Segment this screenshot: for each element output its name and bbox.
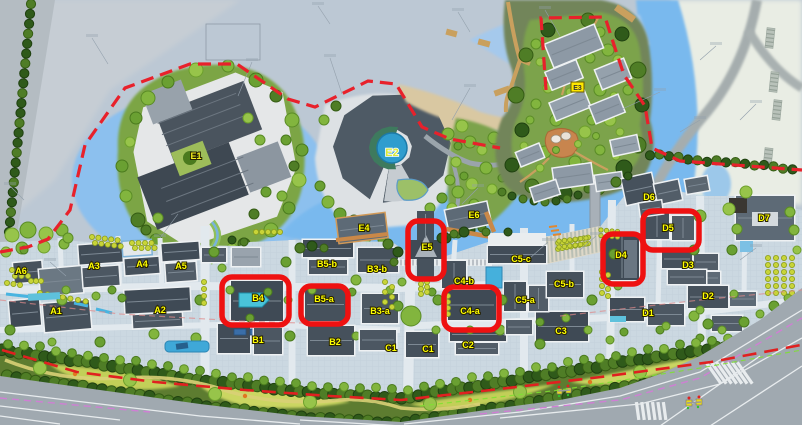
svg-text:E3: E3	[573, 85, 582, 92]
svg-text:B5-b: B5-b	[317, 259, 338, 269]
svg-text:B3-b: B3-b	[367, 264, 388, 274]
svg-text:E2: E2	[385, 147, 398, 159]
svg-text:D1: D1	[642, 308, 654, 318]
svg-text:D3: D3	[682, 260, 694, 270]
svg-text:D5: D5	[662, 223, 674, 233]
svg-text:B5-a: B5-a	[314, 294, 335, 304]
svg-text:A3: A3	[88, 261, 100, 271]
svg-text:E6: E6	[468, 210, 479, 220]
svg-text:E1: E1	[190, 151, 201, 161]
svg-text:C2: C2	[462, 340, 474, 350]
svg-text:A1: A1	[50, 306, 62, 316]
svg-text:B3-a: B3-a	[370, 306, 391, 316]
svg-text:C4-a: C4-a	[460, 306, 481, 316]
svg-text:C5-b: C5-b	[554, 279, 575, 289]
svg-text:C5-a: C5-a	[515, 295, 536, 305]
svg-text:A6: A6	[15, 266, 27, 276]
svg-text:E5: E5	[421, 242, 432, 252]
svg-text:B1: B1	[252, 335, 264, 345]
svg-text:A5: A5	[175, 261, 187, 271]
svg-text:A4: A4	[136, 259, 148, 269]
svg-text:C1: C1	[385, 343, 397, 353]
svg-text:D6: D6	[643, 192, 655, 202]
svg-text:E4: E4	[358, 223, 369, 233]
svg-text:C5-c: C5-c	[511, 254, 531, 264]
svg-text:B2: B2	[329, 337, 341, 347]
svg-text:C1: C1	[422, 344, 434, 354]
svg-text:C4-b: C4-b	[454, 276, 475, 286]
svg-text:D4: D4	[615, 250, 627, 260]
svg-text:C3: C3	[555, 326, 567, 336]
svg-text:B4: B4	[252, 293, 264, 303]
svg-text:D2: D2	[702, 291, 714, 301]
svg-text:A2: A2	[154, 305, 166, 315]
svg-text:D7: D7	[758, 213, 770, 223]
